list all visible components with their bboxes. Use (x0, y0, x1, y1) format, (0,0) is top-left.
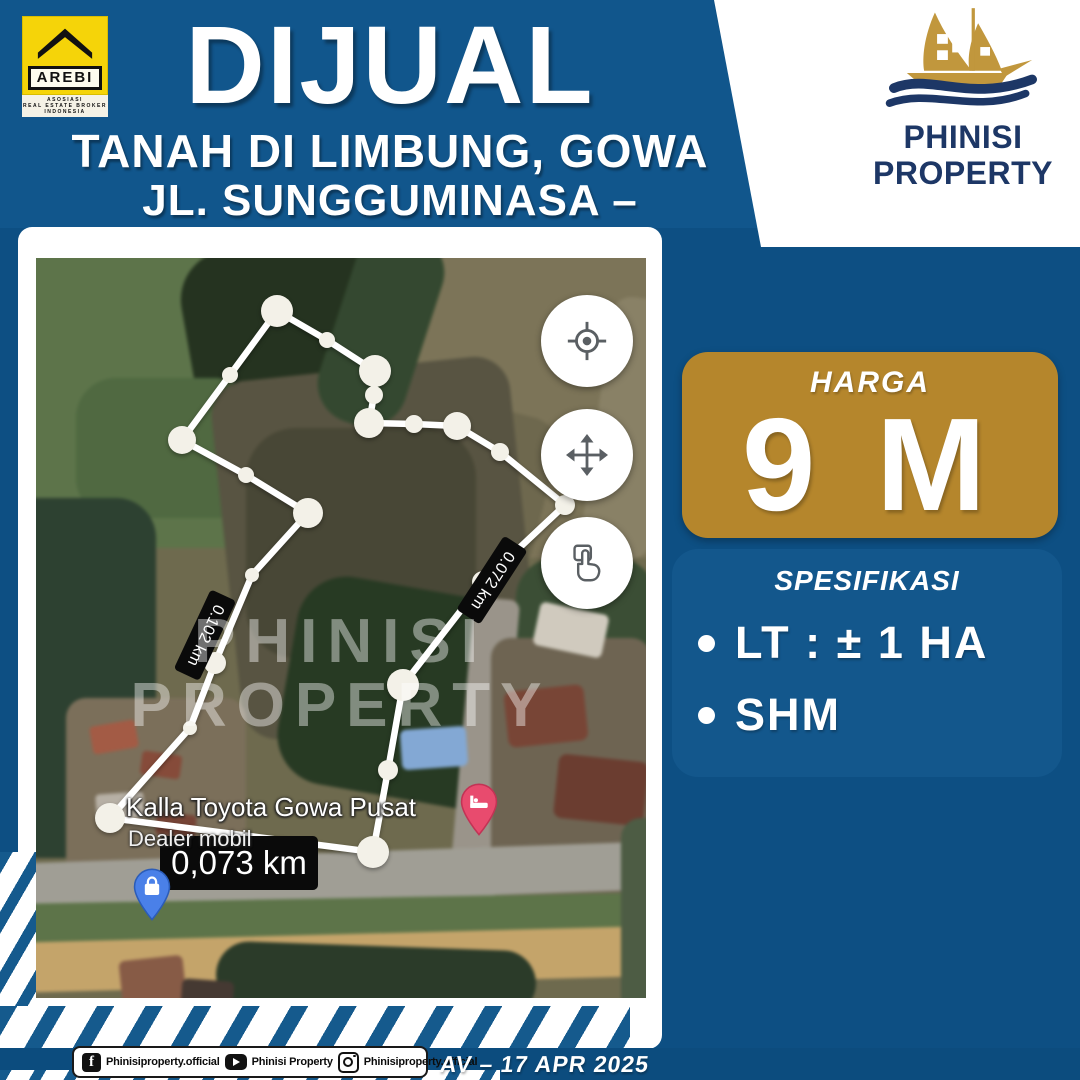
watermark-line1: PHINISI (36, 610, 646, 674)
bullet-icon (698, 707, 715, 724)
facebook-handle[interactable]: Phinisiproperty.official (106, 1056, 220, 1068)
price-value: 9 M (682, 400, 1058, 529)
specs-card: SPESIFIKASI LT : ± 1 HA SHM (672, 549, 1062, 777)
brand-name-line1: PHINISI (858, 119, 1068, 155)
pan-button[interactable] (541, 409, 633, 501)
satellite-map: 0,073 km 0.102 km 0.072 km Kalla Toyota … (36, 258, 646, 998)
facebook-icon[interactable]: f (82, 1053, 101, 1072)
map-place-name: Kalla Toyota Gowa Pusat (126, 792, 416, 823)
spec-land-area: LT : ± 1 HA (735, 617, 988, 669)
phinisi-property-logo: PHINISI PROPERTY (858, 6, 1068, 191)
spec-row-certificate: SHM (698, 689, 1062, 741)
brand-name-line2: PROPERTY (858, 155, 1068, 191)
move-arrows-icon (563, 431, 611, 479)
tap-button[interactable] (541, 517, 633, 609)
social-links-pill: f Phinisiproperty.official Phinisi Prope… (72, 1046, 428, 1078)
page-subtitle-location: TANAH DI LIMBUNG, GOWA (40, 128, 740, 175)
youtube-handle[interactable]: Phinisi Property (252, 1056, 333, 1068)
listing-date: AV – 17 APR 2025 (438, 1051, 651, 1078)
locate-button[interactable] (541, 295, 633, 387)
tap-hand-icon (564, 540, 610, 586)
instagram-icon[interactable] (338, 1052, 359, 1073)
store-pin-icon[interactable] (133, 868, 171, 922)
phinisi-ship-icon (883, 6, 1043, 114)
watermark-line2: PROPERTY (36, 674, 646, 738)
price-card: HARGA 9 M (682, 352, 1058, 538)
flyer-page: AREBI ASOSIASI REAL ESTATE BROKER INDONE… (0, 0, 1080, 1080)
specs-title: SPESIFIKASI (672, 565, 1062, 597)
map-place-type: Dealer mobil (128, 826, 252, 852)
bottom-stripes-decoration (0, 1006, 630, 1048)
crosshair-icon (564, 318, 610, 364)
page-title: DIJUAL (40, 10, 740, 122)
spec-row-land-area: LT : ± 1 HA (698, 617, 1062, 669)
bullet-icon (698, 635, 715, 652)
spec-certificate: SHM (735, 689, 841, 741)
youtube-icon[interactable] (225, 1054, 247, 1070)
lodging-pin-icon[interactable] (460, 782, 498, 838)
